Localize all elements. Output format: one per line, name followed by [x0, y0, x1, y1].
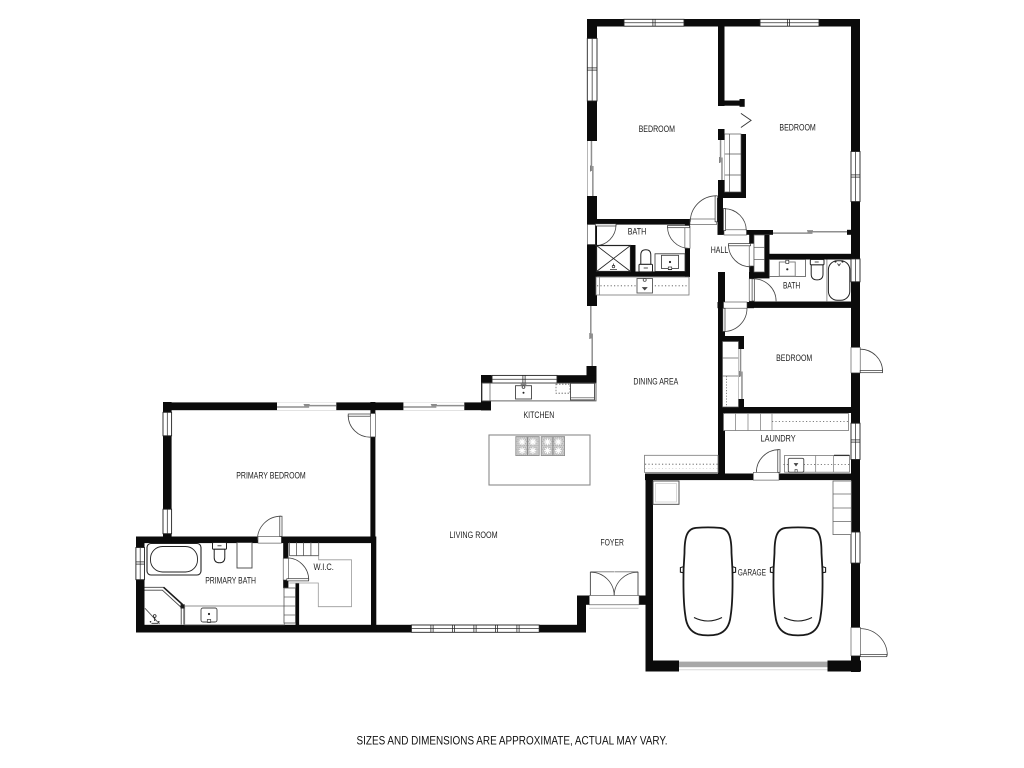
- svg-text:BEDROOM: BEDROOM: [639, 124, 675, 134]
- svg-text:W.I.C.: W.I.C.: [314, 562, 334, 572]
- svg-text:DINING AREA: DINING AREA: [633, 377, 678, 387]
- svg-text:HALL: HALL: [711, 245, 729, 255]
- svg-text:BATH: BATH: [628, 227, 647, 237]
- svg-text:KITCHEN: KITCHEN: [524, 410, 555, 420]
- svg-text:FOYER: FOYER: [601, 537, 625, 547]
- svg-text:BATH: BATH: [783, 280, 800, 290]
- svg-text:PRIMARY BEDROOM: PRIMARY BEDROOM: [236, 471, 306, 481]
- svg-text:SIZES AND DIMENSIONS ARE APPRO: SIZES AND DIMENSIONS ARE APPROXIMATE, AC…: [357, 733, 668, 747]
- svg-text:PRIMARY BATH: PRIMARY BATH: [205, 576, 256, 586]
- svg-text:LIVING ROOM: LIVING ROOM: [450, 530, 498, 540]
- svg-text:LAUNDRY: LAUNDRY: [761, 433, 796, 443]
- svg-text:BEDROOM: BEDROOM: [776, 353, 812, 363]
- svg-text:BEDROOM: BEDROOM: [779, 123, 815, 133]
- svg-text:GARAGE: GARAGE: [738, 568, 766, 578]
